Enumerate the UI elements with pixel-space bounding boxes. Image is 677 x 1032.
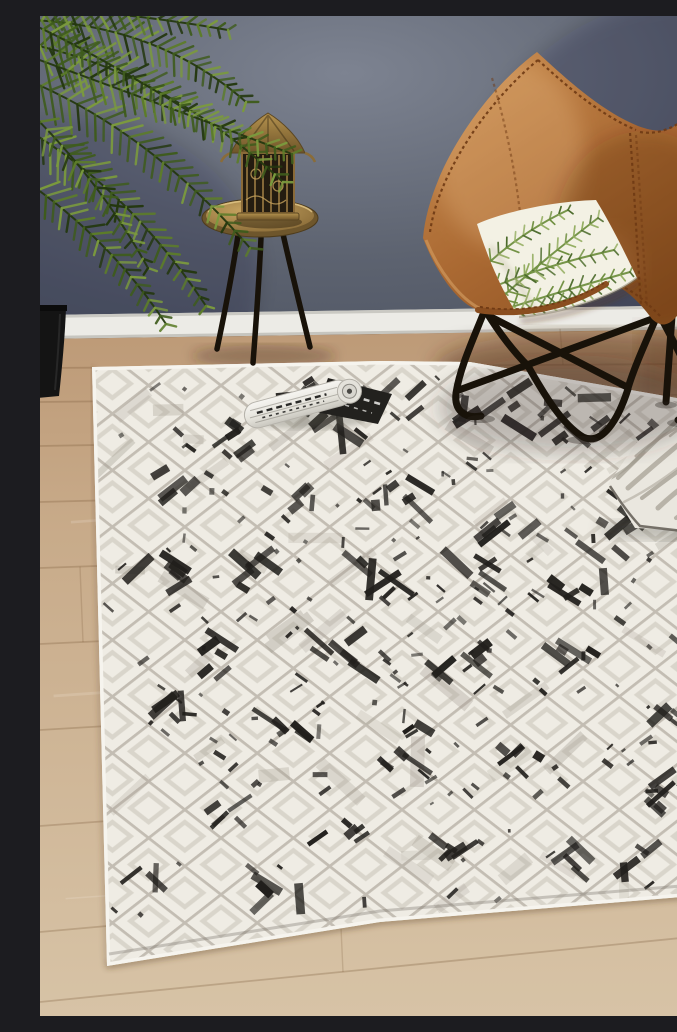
room-photo [40,16,677,1016]
